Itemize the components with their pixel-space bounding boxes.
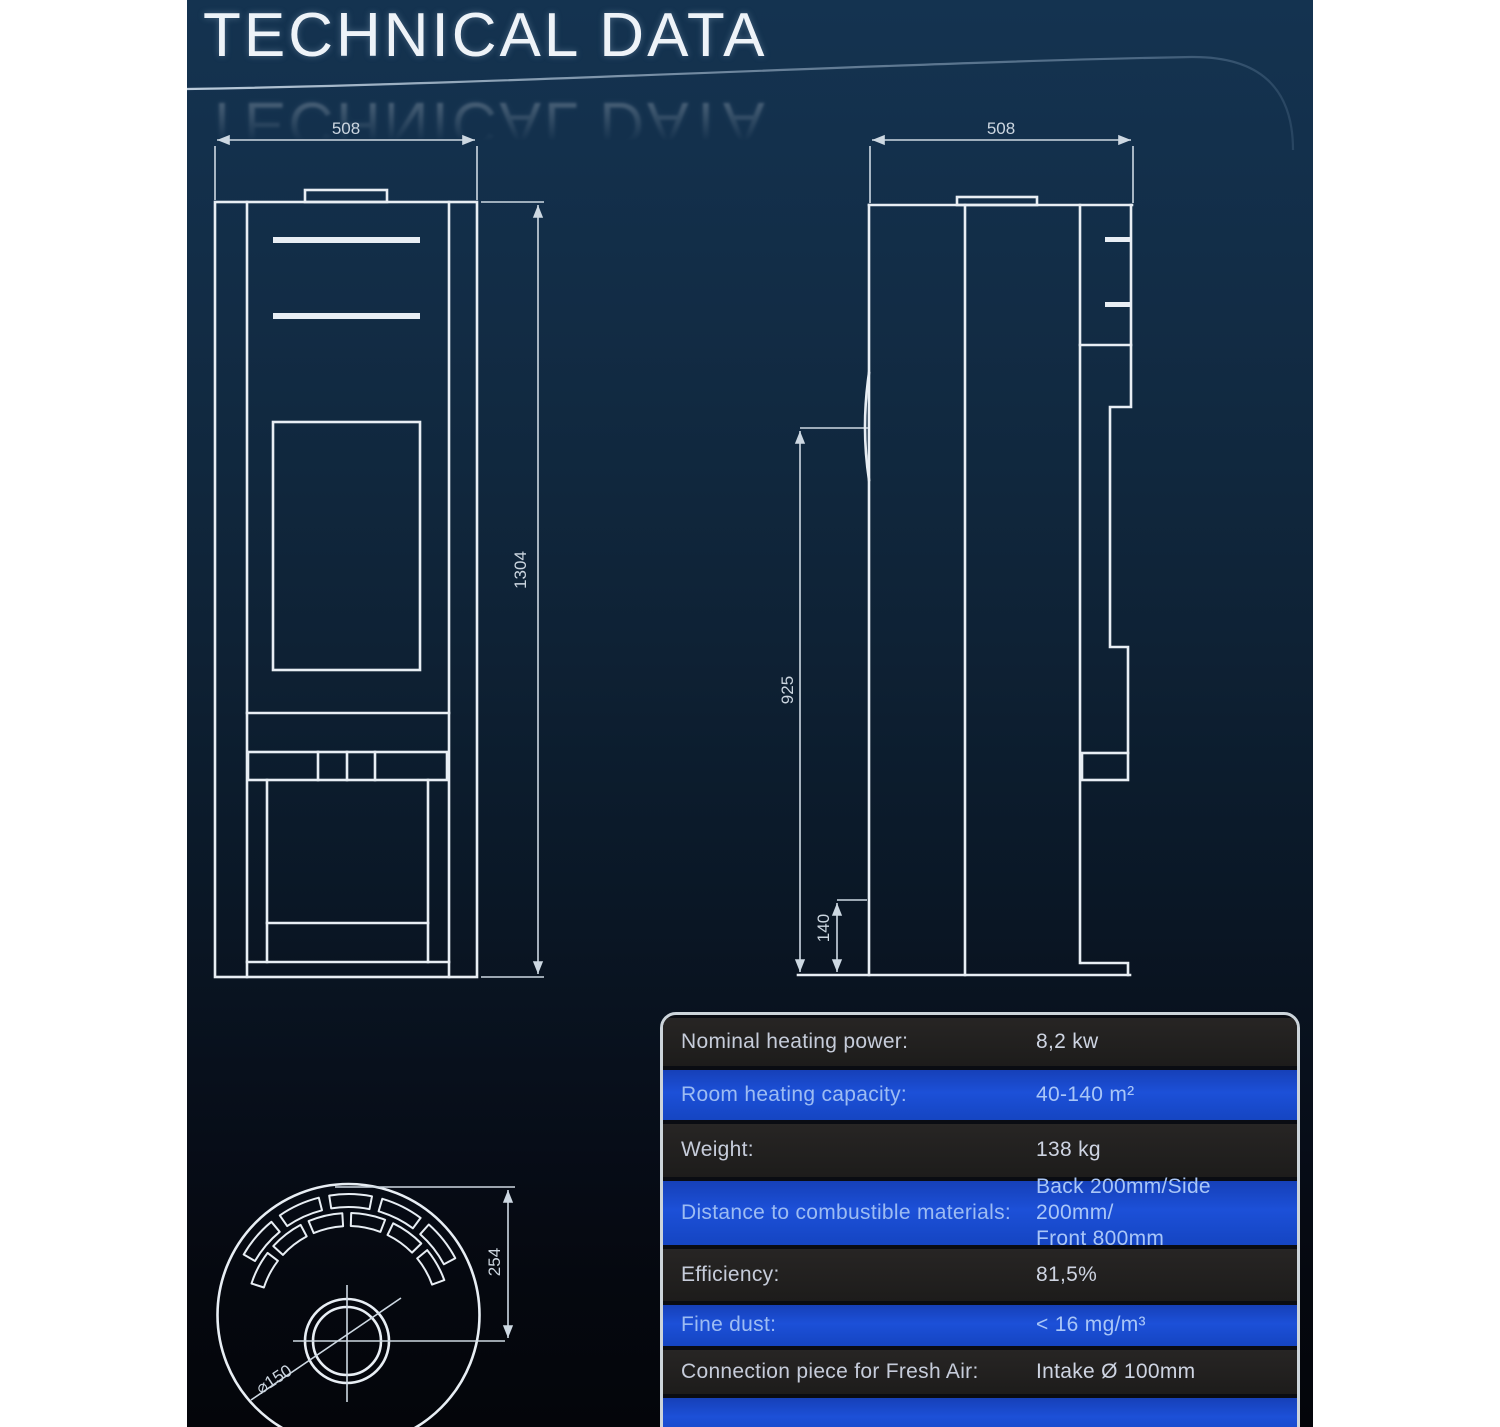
- spec-value: Intake Ø 100mm: [1036, 1359, 1297, 1385]
- front-vent-slat: [273, 237, 420, 243]
- vent-slot: [417, 1250, 444, 1285]
- spec-row: Efficiency:81,5%: [663, 1245, 1297, 1301]
- vent-slot: [252, 1253, 278, 1288]
- spec-label: Room heating capacity:: [663, 1082, 1036, 1108]
- spec-row: Distance to combustible materials:Back 2…: [663, 1177, 1297, 1245]
- spec-row: Connection piece for Fresh Air:Intake Ø …: [663, 1346, 1297, 1394]
- spec-value: Back 200mm/Side 200mm/ Front 800mm: [1036, 1174, 1297, 1253]
- vent-slot: [309, 1213, 344, 1233]
- side-handle-band: [1082, 753, 1128, 780]
- spec-label: Fine dust:: [663, 1312, 1036, 1338]
- vent-slot: [244, 1222, 280, 1261]
- spec-label: Weight:: [663, 1137, 1036, 1163]
- vent-slot: [280, 1198, 322, 1226]
- front-width-dimension: 508: [215, 119, 477, 200]
- vent-slot: [388, 1223, 422, 1252]
- stove-side-outline: [798, 197, 1132, 975]
- side-vent-slat: [1105, 302, 1132, 307]
- sheet-photo: TECHNICAL DATA TECHNICAL DATA: [187, 0, 1313, 1427]
- side-width-dimension: 508: [870, 119, 1133, 203]
- spec-row: Room heating capacity:40-140 m²: [663, 1066, 1297, 1120]
- spec-row: Nominal heating power:8,2 kw: [663, 1018, 1297, 1066]
- top-view-drawing: ⌀150 254: [218, 1184, 516, 1427]
- spec-label: Nominal heating power:: [663, 1029, 1036, 1055]
- spec-row: Fine dust:< 16 mg/m³: [663, 1301, 1297, 1346]
- top-body-circle: [218, 1184, 480, 1427]
- side-rear-profile: [1110, 205, 1131, 753]
- spec-table: Nominal heating power:8,2 kwRoom heating…: [660, 1012, 1300, 1427]
- spec-label: Distance to combustible materials:: [663, 1200, 1036, 1226]
- front-height-dimension: 1304: [481, 202, 544, 977]
- side-view-drawing: 508 925 140: [778, 119, 1133, 975]
- front-height-label: 1304: [511, 551, 530, 589]
- spec-value: 138 kg: [1036, 1137, 1297, 1163]
- front-vent-slat: [273, 313, 420, 319]
- spec-value: 81,5%: [1036, 1262, 1297, 1288]
- side-base-height-dimension: 140: [814, 900, 867, 972]
- side-width-label: 508: [987, 119, 1015, 138]
- spec-label: Connection piece for Fresh Air:: [663, 1359, 1036, 1385]
- side-upper-height-label: 925: [778, 676, 797, 704]
- front-width-label: 508: [332, 119, 360, 138]
- side-base-height-label: 140: [814, 914, 833, 942]
- front-view-drawing: 508 1304: [215, 119, 544, 977]
- side-upper-height-dimension: 925: [778, 428, 868, 972]
- spec-row: [663, 1394, 1297, 1427]
- stove-front-outline: [215, 190, 477, 977]
- front-door-window: [273, 422, 420, 670]
- technical-data-sheet: TECHNICAL DATA TECHNICAL DATA: [0, 0, 1500, 1427]
- top-depth-label: 254: [485, 1248, 504, 1276]
- side-vent-slat: [1105, 237, 1132, 242]
- flue-diameter-label: ⌀150: [253, 1361, 296, 1398]
- side-rear-foot: [1082, 963, 1128, 975]
- spec-row: Weight:138 kg: [663, 1120, 1297, 1177]
- spec-value: < 16 mg/m³: [1036, 1312, 1297, 1338]
- spec-label: Efficiency:: [663, 1262, 1036, 1288]
- vent-slot: [329, 1194, 372, 1209]
- spec-value: 40-140 m²: [1036, 1082, 1297, 1108]
- vent-slot: [351, 1213, 385, 1232]
- spec-value: 8,2 kw: [1036, 1029, 1297, 1055]
